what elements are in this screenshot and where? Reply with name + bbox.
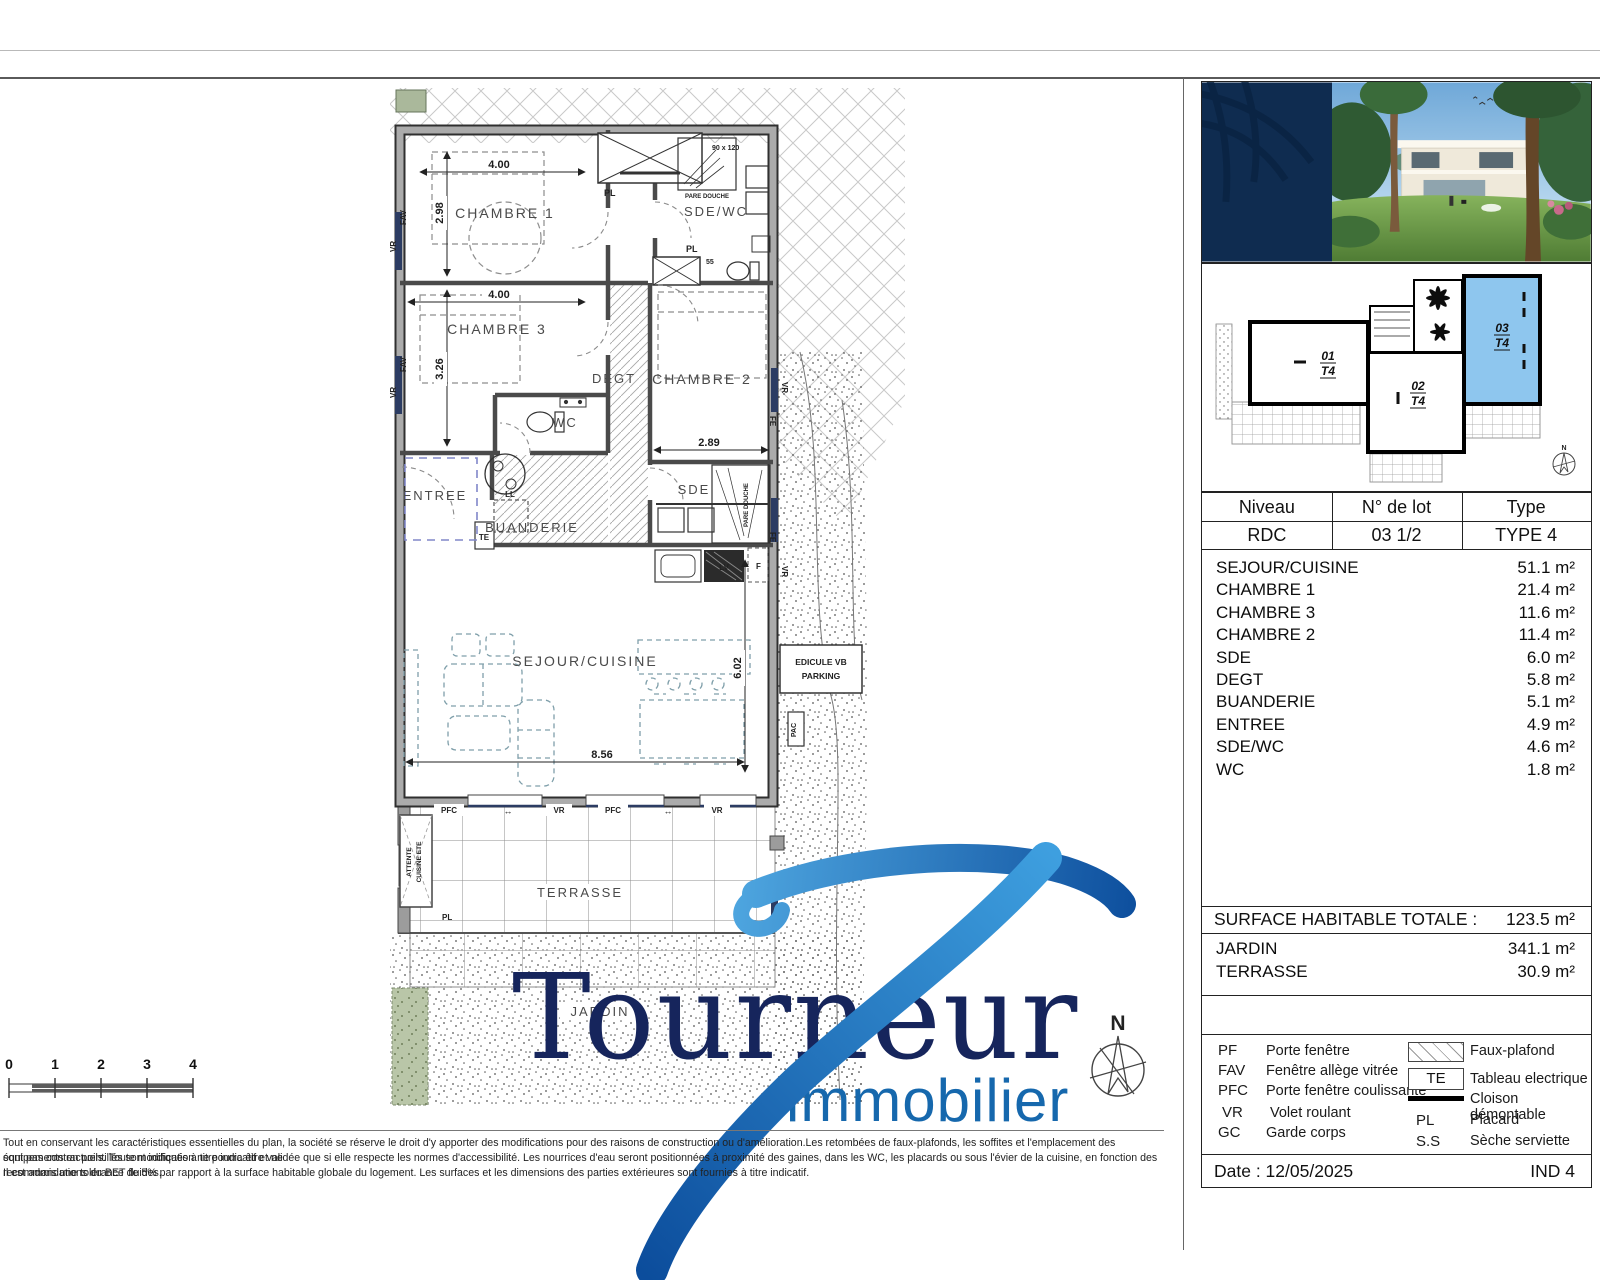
siteplan-terrace1 — [1232, 402, 1360, 444]
siteplan-lot1-type: T4 — [1321, 364, 1335, 378]
tag-lv: LV — [719, 563, 729, 572]
siteplan-stairs — [1370, 306, 1414, 352]
room-area: 11.4 m² — [1519, 624, 1575, 646]
scale-tick-2: 2 — [95, 1056, 107, 1072]
closet-top — [598, 133, 702, 183]
legend-item-fav: FAVFenêtre allège vitrée — [1218, 1062, 1398, 1080]
compass-cross2 — [1100, 1048, 1134, 1094]
legend-item-pf: PFPorte fenêtre — [1218, 1042, 1350, 1060]
tag-vr-6: VR — [553, 806, 564, 815]
siteplan-terrace2 — [1370, 450, 1442, 482]
room-name: WC — [1216, 759, 1244, 781]
green-patch — [396, 90, 426, 112]
photo-navy-panel — [1202, 82, 1332, 262]
room-area: 11.6 m² — [1519, 602, 1575, 624]
footer-index: IND 4 — [1530, 1161, 1575, 1182]
room-area-row: CHAMBRE 211.4 m² — [1202, 624, 1591, 646]
degt-hatch — [610, 285, 648, 543]
legend-label-pl: Placard — [1470, 1112, 1519, 1128]
plan-sheet-page: { "branding": {"name": "Tournéur", "subt… — [0, 0, 1600, 1280]
legend-item-gc: GCGarde corps — [1218, 1124, 1346, 1142]
room-area-row: SEJOUR/CUISINE51.1 m² — [1202, 557, 1591, 579]
label-sdewc: SDE/WC — [684, 204, 748, 219]
tag-vr-7: VR — [711, 806, 722, 815]
tag-f: F — [756, 562, 761, 571]
outdoor-row: TERRASSE30.9 m² — [1202, 960, 1591, 983]
scale-tick-0: 0 — [3, 1056, 15, 1072]
label-entree: ENTREE — [403, 488, 468, 503]
edicule-box: EDICULE VB PARKING — [780, 645, 862, 693]
tag-attente-2: CUISINE ETE — [416, 841, 423, 882]
pac-label: PAC — [791, 723, 798, 737]
te-swatch: TE — [1408, 1068, 1464, 1090]
siteplan-hedge — [1216, 324, 1232, 419]
closet-sdewc — [653, 257, 700, 285]
room-area-row: SDE6.0 m² — [1202, 647, 1591, 669]
outdoor-area: 30.9 m² — [1517, 960, 1575, 983]
room-area: 5.1 m² — [1527, 691, 1575, 713]
tag-ll: LL — [505, 490, 515, 499]
label-degt: DEGT — [592, 371, 636, 386]
legend-code-ss: S.S — [1416, 1133, 1464, 1150]
dim-chambre3-w: 3.26 — [434, 358, 446, 379]
room-name: CHAMBRE 3 — [1216, 602, 1315, 624]
cloison-swatch — [1408, 1096, 1464, 1101]
tag-fav-2: FAV — [399, 356, 408, 372]
room-name: SDE — [1216, 647, 1251, 669]
room-name: CHAMBRE 2 — [1216, 624, 1315, 646]
legend-label-te: Tableau electrique — [1470, 1071, 1588, 1087]
room-area-row: SDE/WC4.6 m² — [1202, 736, 1591, 758]
disclaimer-rule — [0, 1130, 1164, 1131]
slide-arrow-2: ↔ — [664, 806, 673, 816]
sidebar-stack: Niveau N° de lot Type RDC 03 1/2 TYPE 4 … — [1201, 492, 1592, 1188]
legend-code-vr: VR — [1218, 1104, 1270, 1121]
tag-fe-2: FE — [768, 532, 777, 543]
legend-label-fav: Fenêtre allège vitrée — [1266, 1063, 1398, 1079]
outdoor-areas: JARDIN341.1 m² TERRASSE30.9 m² — [1202, 937, 1591, 983]
siteplan-terrace3 — [1464, 404, 1540, 438]
swash-topbar — [756, 858, 1122, 904]
compass-n: N — [1110, 1012, 1125, 1035]
footer-row: Date : 12/05/2025 IND 4 — [1202, 1154, 1591, 1188]
tag-te: TE — [479, 533, 490, 542]
tag-pl-2: PL — [686, 244, 698, 254]
scale-tick-4: 4 — [187, 1056, 199, 1072]
hedge-strip — [392, 988, 428, 1105]
legend-item-pfc: PFCPorte fenêtre coulissante — [1218, 1082, 1426, 1100]
photo-villa-render — [1332, 82, 1591, 262]
swash-stem — [652, 858, 1046, 1270]
room-area: 6.0 m² — [1527, 647, 1575, 669]
sidebar-frame-line — [1183, 78, 1184, 1250]
sde-fixtures — [656, 465, 770, 543]
siteplan-lot2-type: T4 — [1411, 394, 1425, 408]
legend-code-pl: PL — [1416, 1112, 1464, 1129]
room-area-row: DEGT5.8 m² — [1202, 669, 1591, 691]
room-area-row: CHAMBRE 311.6 m² — [1202, 602, 1591, 624]
info-header-type: Type — [1461, 493, 1591, 521]
kitchen-fixtures — [655, 548, 768, 582]
info-value-type: TYPE 4 — [1461, 521, 1591, 549]
outdoor-row: JARDIN341.1 m² — [1202, 937, 1591, 960]
outdoor-area: 341.1 m² — [1508, 937, 1575, 960]
room-area-row: ENTREE4.9 m² — [1202, 714, 1591, 736]
siteplan-compass: N — [1553, 445, 1575, 475]
info-table-value-row: RDC 03 1/2 TYPE 4 — [1202, 521, 1591, 549]
siteplan-lot2-no: 02 — [1411, 379, 1425, 393]
room-area: 4.9 m² — [1527, 714, 1575, 736]
siteplan-palm1 — [1426, 286, 1450, 310]
total-surface-label: SURFACE HABITABLE TOTALE : — [1214, 909, 1477, 930]
info-header-niveau: Niveau — [1202, 493, 1332, 521]
compass-cross1 — [1090, 1062, 1146, 1078]
info-value-lot: 03 1/2 — [1332, 521, 1462, 549]
legend-code-pf: PF — [1218, 1042, 1266, 1059]
room-areas-list: SEJOUR/CUISINE51.1 m² CHAMBRE 121.4 m² C… — [1202, 557, 1591, 781]
tag-vr-1: VR — [389, 241, 398, 252]
siteplan-lot3-no: 03 — [1495, 321, 1509, 335]
tag-pfc-1: PFC — [441, 806, 457, 815]
dim-chambre1-l: 4.00 — [488, 159, 509, 171]
edicule-line1: EDICULE VB — [795, 657, 846, 667]
label-chambre3: CHAMBRE 3 — [447, 321, 547, 337]
room-name: ENTREE — [1216, 714, 1285, 736]
tag-fe-1: FE — [768, 416, 777, 427]
legend: PFPorte fenêtre FAVFenêtre allège vitrée… — [1202, 1034, 1591, 1154]
legend-label-ss: Sèche serviette — [1470, 1133, 1570, 1149]
tag-vr-4: VR — [780, 566, 789, 577]
room-area: 5.8 m² — [1527, 669, 1575, 691]
legend-label-vr: Volet roulant — [1270, 1105, 1351, 1121]
label-chambre1: CHAMBRE 1 — [455, 205, 555, 221]
dim-chambre3-l: 4.00 — [488, 289, 509, 301]
info-header-lot: N° de lot — [1332, 493, 1462, 521]
footer-date: Date : 12/05/2025 — [1214, 1161, 1353, 1182]
legend-code-fav: FAV — [1218, 1062, 1266, 1079]
tag-shower-size: 90 x 120 — [712, 145, 739, 152]
bedroom-furniture — [420, 152, 766, 383]
legend-label-pfc: Porte fenêtre coulissante — [1266, 1083, 1426, 1099]
dim-sejour-l: 8.56 — [591, 749, 612, 761]
room-area: 21.4 m² — [1517, 579, 1575, 601]
tag-vr-2: VR — [389, 387, 398, 398]
siteplan-compass-n: N — [1561, 445, 1566, 452]
disclaimer-line3: Il est admis une tolérance de 5% par rap… — [3, 1166, 1163, 1181]
tag-pare-douche-1: PARE DOUCHE — [685, 194, 729, 200]
legend-label-faux-plafond: Faux-plafond — [1470, 1043, 1555, 1059]
tag-pl-size: 55 — [706, 259, 714, 266]
faux-plafond-swatch — [1408, 1042, 1464, 1062]
siteplan-lot1-no: 01 — [1321, 349, 1335, 363]
legend-label-pf: Porte fenêtre — [1266, 1043, 1350, 1059]
info-table-header-row: Niveau N° de lot Type — [1202, 493, 1591, 521]
label-buanderie: BUANDERIE — [485, 520, 579, 535]
dim-sejour-w: 6.02 — [732, 657, 744, 678]
room-area: 51.1 m² — [1517, 557, 1575, 579]
dim-chambre1-w: 2.98 — [434, 202, 446, 223]
scale-tick-1: 1 — [49, 1056, 61, 1072]
room-area-row: BUANDERIE5.1 m² — [1202, 691, 1591, 713]
outdoor-name: JARDIN — [1216, 937, 1277, 960]
scale-bar-graphic — [6, 1076, 206, 1102]
total-surface-value: 123.5 m² — [1506, 909, 1575, 930]
tag-vr-3: VR — [780, 382, 789, 393]
outdoor-name: TERRASSE — [1216, 960, 1308, 983]
room-area: 4.6 m² — [1527, 736, 1575, 758]
room-area-row: WC1.8 m² — [1202, 759, 1591, 781]
legend-label-gc: Garde corps — [1266, 1125, 1346, 1141]
total-surface-row: SURFACE HABITABLE TOTALE : 123.5 m² — [1202, 906, 1591, 933]
room-name: SDE/WC — [1216, 736, 1284, 758]
room-name: DEGT — [1216, 669, 1263, 691]
divider — [1202, 995, 1591, 996]
tag-attente-1: ATTENTE — [406, 847, 413, 877]
slide-arrow-1: ↔ — [504, 806, 513, 816]
siteplan-lot3-type: T4 — [1495, 336, 1509, 350]
info-value-niveau: RDC — [1202, 521, 1332, 549]
scale-bar: 0 1 2 3 4 — [6, 1056, 206, 1104]
room-area-row: CHAMBRE 121.4 m² — [1202, 579, 1591, 601]
scale-tick-3: 3 — [141, 1056, 153, 1072]
label-chambre2: CHAMBRE 2 — [652, 371, 752, 387]
divider — [1202, 549, 1591, 550]
edicule-line2: PARKING — [802, 671, 841, 681]
room-name: SEJOUR/CUISINE — [1216, 557, 1359, 579]
site-plan: 01 T4 02 T4 03 T4 N — [1201, 263, 1592, 492]
label-sejour: SEJOUR/CUISINE — [512, 653, 657, 669]
siteplan-lot1 — [1250, 322, 1368, 404]
divider — [1202, 933, 1591, 934]
label-sde: SDE — [678, 482, 711, 497]
tag-fav-1: FAV — [399, 209, 408, 225]
tag-pfc-2: PFC — [605, 806, 621, 815]
tag-pl-1: PL — [604, 188, 616, 198]
room-name: BUANDERIE — [1216, 691, 1315, 713]
tag-pare-douche-2: PARE DOUCHE — [744, 483, 750, 527]
legend-code-pfc: PFC — [1218, 1082, 1266, 1099]
legend-code-gc: GC — [1218, 1124, 1266, 1141]
legend-item-vr: VRVolet roulant — [1218, 1104, 1351, 1122]
label-wc: WC — [552, 415, 578, 430]
room-area: 1.8 m² — [1527, 759, 1575, 781]
dim-chambre2-l: 2.89 — [698, 437, 719, 449]
room-name: CHAMBRE 1 — [1216, 579, 1315, 601]
tag-pl-3: PL — [442, 913, 452, 922]
pac-box: PAC — [788, 712, 804, 746]
hero-photo — [1201, 81, 1592, 263]
compass: N — [1076, 1002, 1160, 1112]
